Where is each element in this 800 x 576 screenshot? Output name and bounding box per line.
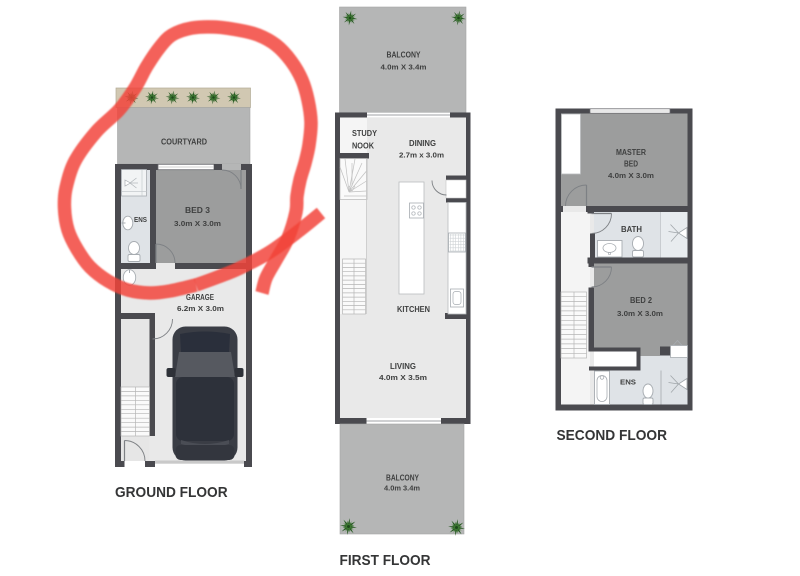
svg-text:4.0m 3.4m: 4.0m 3.4m <box>384 484 420 493</box>
svg-text:COURTYARD: COURTYARD <box>161 137 207 147</box>
svg-text:GROUND FLOOR: GROUND FLOOR <box>115 485 228 501</box>
svg-text:BED 3: BED 3 <box>185 205 210 215</box>
svg-text:DINING: DINING <box>409 138 436 148</box>
svg-text:3.0m X 3.0m: 3.0m X 3.0m <box>174 219 221 228</box>
svg-text:BED 2: BED 2 <box>630 295 652 305</box>
svg-text:BALCONY: BALCONY <box>386 473 419 483</box>
svg-text:4.0m X 3.4m: 4.0m X 3.4m <box>381 63 427 72</box>
svg-text:3.0m X 3.0m: 3.0m X 3.0m <box>617 309 663 318</box>
svg-text:ENS: ENS <box>134 217 147 224</box>
svg-text:4.0m X 3.0m: 4.0m X 3.0m <box>608 171 654 180</box>
svg-text:GARAGE: GARAGE <box>186 292 214 302</box>
svg-text:FIRST FLOOR: FIRST FLOOR <box>340 553 431 569</box>
svg-text:NOOK: NOOK <box>352 141 375 151</box>
svg-text:2.7m x 3.0m: 2.7m x 3.0m <box>399 151 444 160</box>
svg-text:BALCONY: BALCONY <box>387 50 421 60</box>
svg-text:KITCHEN: KITCHEN <box>397 304 430 314</box>
svg-text:BED: BED <box>624 159 638 169</box>
svg-text:ENS: ENS <box>620 378 636 387</box>
svg-text:SECOND FLOOR: SECOND FLOOR <box>557 428 668 444</box>
svg-text:BATH: BATH <box>621 224 642 234</box>
svg-text:6.2m X 3.0m: 6.2m X 3.0m <box>177 304 224 313</box>
svg-text:4.0m X 3.5m: 4.0m X 3.5m <box>379 373 427 382</box>
svg-text:MASTER: MASTER <box>616 147 647 157</box>
svg-text:STUDY: STUDY <box>352 128 377 138</box>
svg-text:LIVING: LIVING <box>390 361 416 371</box>
